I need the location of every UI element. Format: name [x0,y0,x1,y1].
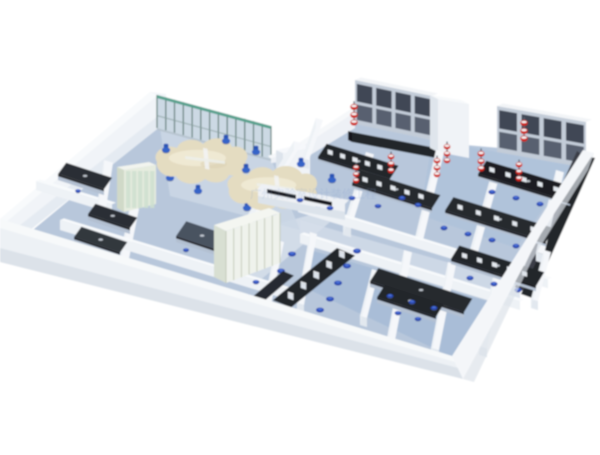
svg-text:广州实验室设计装修工程: 广州实验室设计装修工程 [250,187,377,201]
